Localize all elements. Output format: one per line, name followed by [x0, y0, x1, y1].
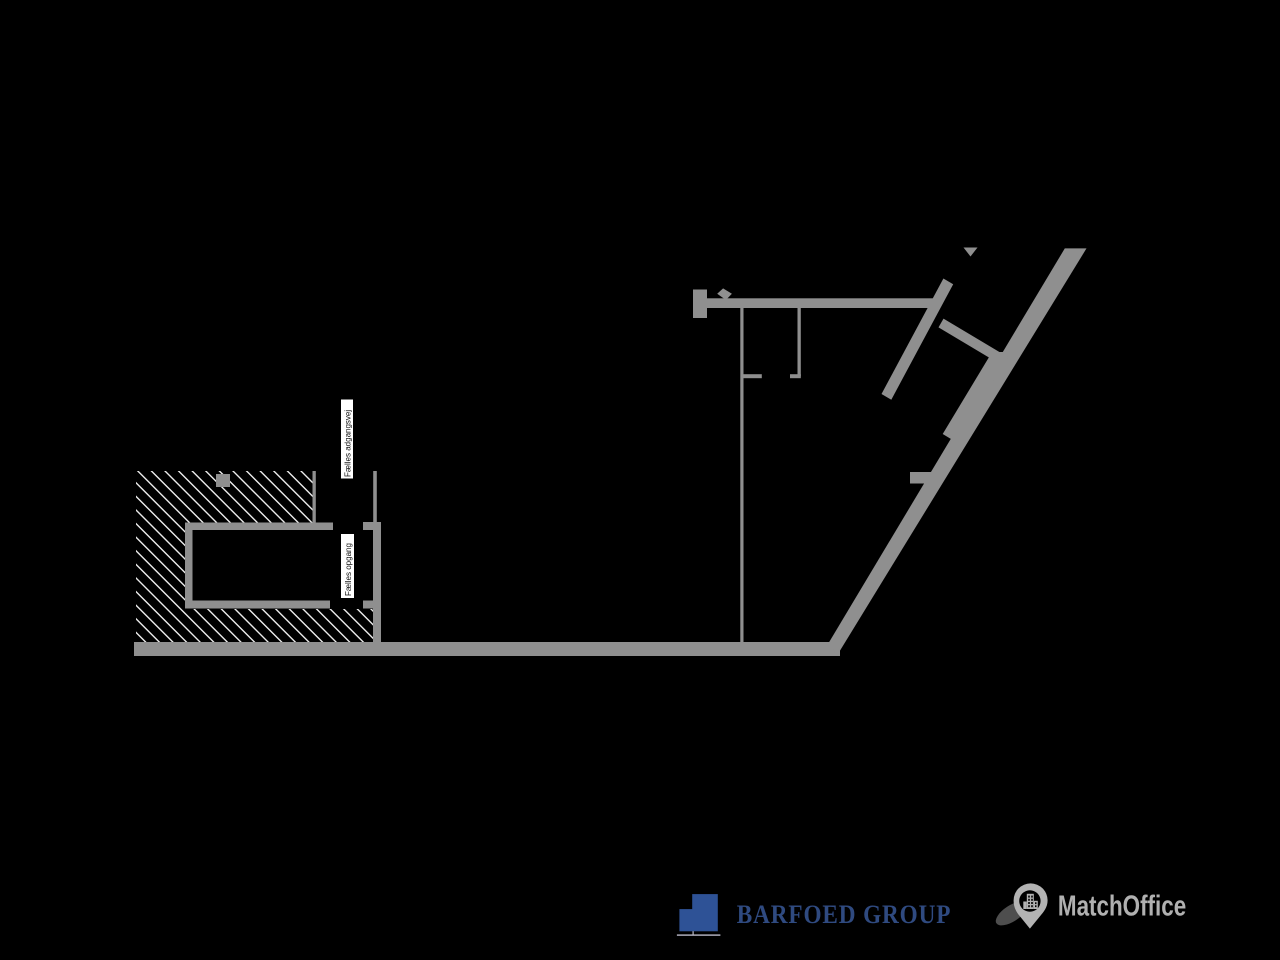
svg-text:Fælles opgang: Fælles opgang — [344, 543, 353, 596]
svg-text:BARFOED GROUP: BARFOED GROUP — [737, 900, 952, 929]
svg-text:Fælles adgangsvej: Fælles adgangsvej — [344, 410, 353, 477]
svg-text:MatchOffice: MatchOffice — [1058, 891, 1186, 923]
